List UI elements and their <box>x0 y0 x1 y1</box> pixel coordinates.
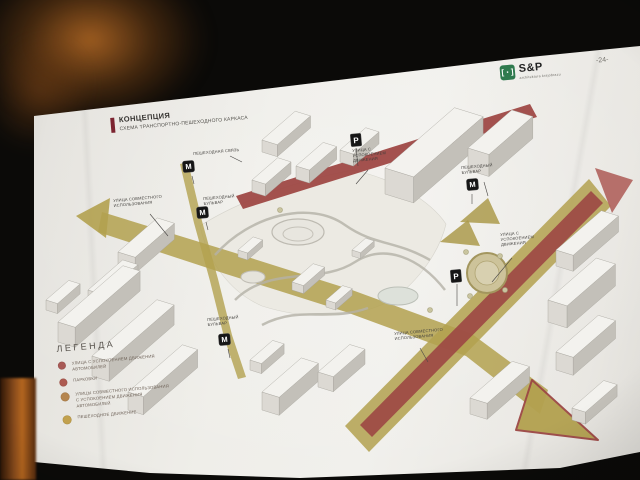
map-label-calmed-street-north: УЛИЦА С УСПОКОЕНИЕМ ДВИЖЕНИЯ <box>352 145 387 163</box>
legend-heading: ЛЕГЕНДА <box>56 335 165 354</box>
screen-fold <box>515 43 605 480</box>
metro-badge: М <box>183 161 195 173</box>
title-accent-bar <box>110 118 115 133</box>
park-pond <box>378 287 418 305</box>
legend-swatch <box>62 415 72 425</box>
legend-label: УЛИЦЫ СОВМЕСТНОГО ИСПОЛЬЗОВАНИЯ С УСПОКО… <box>75 384 170 409</box>
map-label-pedestrian-link: ПЕШЕХОДНАЯ СВЯЗЬ <box>193 147 240 156</box>
metro-badge: М <box>197 207 209 219</box>
avenue-band <box>345 179 611 452</box>
slide-title: КОНЦЕПЦИЯ <box>118 104 247 124</box>
parking-badge: Р <box>450 270 461 283</box>
buildings <box>46 108 619 424</box>
trees <box>278 208 508 313</box>
legend-label: ПЕШЕХОДНОЕ ДВИЖЕНИЕ <box>77 410 137 421</box>
shared-street-arrow-southeast <box>516 380 598 440</box>
company-logo: [·] S&P architektura krajobrazu <box>499 60 561 81</box>
legend-item: УЛИЦЫ СОВМЕСТНОГО ИСПОЛЬЗОВАНИЯ С УСПОКО… <box>60 384 170 410</box>
park-lawn <box>241 271 265 283</box>
map-label-shared-street-south: УЛИЦА СОВМЕСТНОГО ИСПОЛЬЗОВАНИЯ <box>394 327 444 342</box>
map-label-shared-street-west: УЛИЦА СОВМЕСТНОГО ИСПОЛЬЗОВАНИЯ <box>113 194 163 209</box>
slide-title-block: КОНЦЕПЦИЯ СХЕМА ТРАНСПОРТНО-ПЕШЕХОДНОГО … <box>110 104 248 133</box>
round-plaza-inner <box>475 261 499 285</box>
map-label-boulevard-sw: ПЕШЕХОДНЫЙ БУЛЬВАР <box>207 314 239 327</box>
auditorium-photo: [·] S&P architektura krajobrazu -24- КОН… <box>0 0 640 480</box>
park-ground <box>200 170 446 316</box>
calmed-street-north <box>236 104 537 209</box>
boulevard-chevron <box>440 220 480 246</box>
map-label-calmed-street-east: УЛИЦА С УСПОКОЕНИЕМ ДВИЖЕНИЯ <box>500 229 535 247</box>
stage-curtain <box>0 378 36 480</box>
boulevard-chevron <box>460 198 500 224</box>
legend-swatch <box>60 392 70 402</box>
legend-label: УЛИЦА С УСПОКОЕНИЕМ ДВИЖЕНИЯ АВТОМОБИЛЕЙ <box>72 353 156 372</box>
avenue-arrow-northeast <box>595 168 633 213</box>
park-hill <box>272 219 324 245</box>
metro-badge: М <box>219 334 231 346</box>
legend: ЛЕГЕНДА УЛИЦА С УСПОКОЕНИЕМ ДВИЖЕНИЯ АВТ… <box>56 335 172 432</box>
map-label-boulevard-ne: ПЕШЕХОДНЫЙ БУЛЬВАР <box>461 162 493 175</box>
page-number: -24- <box>596 56 609 64</box>
logo-tagline: architektura krajobrazu <box>519 73 561 80</box>
parking-badge: Р <box>350 134 361 147</box>
leader-lines <box>150 148 512 362</box>
legend-swatch <box>58 361 67 370</box>
legend-item: ПЕШЕХОДНОЕ ДВИЖЕНИЕ <box>62 407 171 425</box>
logo-name: S&P <box>518 60 560 75</box>
metro-badge: М <box>467 179 479 191</box>
shared-street-band <box>98 212 548 414</box>
legend-item: УЛИЦА С УСПОКОЕНИЕМ ДВИЖЕНИЯ АВТОМОБИЛЕЙ <box>58 352 167 373</box>
park-hill-terrace <box>283 227 313 241</box>
map-label-boulevard-nw: ПЕШЕХОДНЫЙ БУЛЬВАР <box>203 193 235 206</box>
legend-item: ПАРКОВКИ <box>59 370 168 387</box>
legend-label: ПАРКОВКИ <box>73 376 97 384</box>
logo-icon: [·] <box>499 64 515 80</box>
shared-street-arrow-west <box>76 198 110 238</box>
park-paths <box>215 213 445 325</box>
legend-swatch <box>59 379 68 388</box>
round-plaza <box>467 253 507 293</box>
boulevard-band <box>180 162 246 379</box>
slide-subtitle: СХЕМА ТРАНСПОРТНО-ПЕШЕХОДНОГО КАРКАСА <box>119 115 248 132</box>
calmed-street-diagonal <box>360 191 603 437</box>
